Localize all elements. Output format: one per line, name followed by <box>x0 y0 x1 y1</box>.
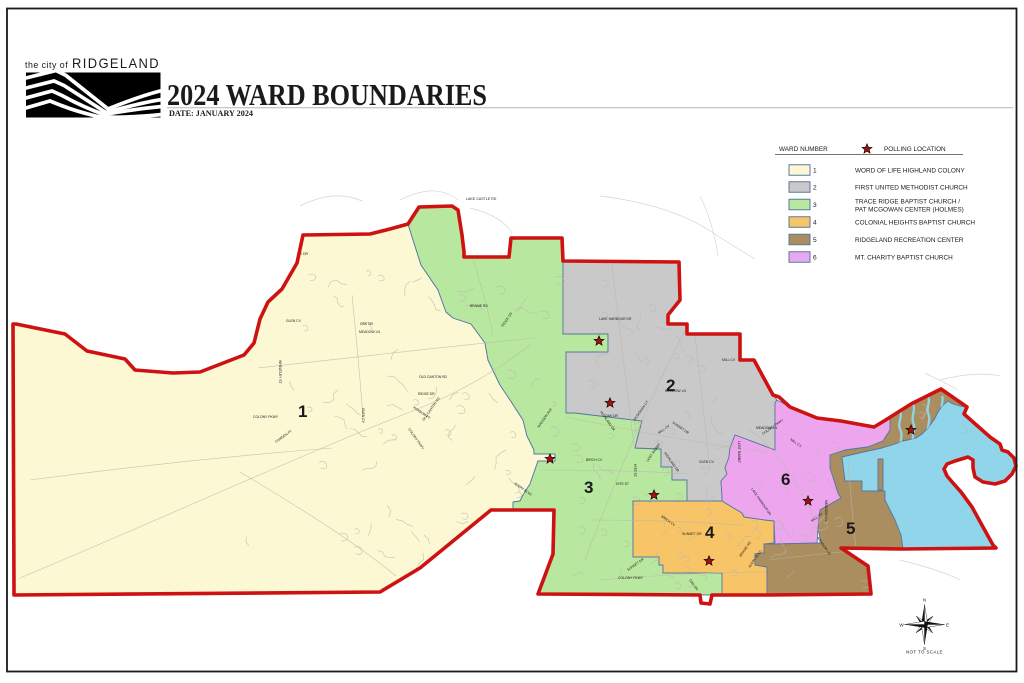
svg-text:WHEATLEY ST: WHEATLEY ST <box>278 360 282 384</box>
svg-text:GLEN CV: GLEN CV <box>286 319 302 323</box>
svg-text:5: 5 <box>846 519 855 538</box>
svg-text:DATE: JANUARY 2024: DATE: JANUARY 2024 <box>169 108 254 118</box>
svg-text:6: 6 <box>813 254 817 261</box>
svg-text:2: 2 <box>666 376 675 395</box>
svg-text:RIDGELAND: RIDGELAND <box>72 55 160 71</box>
svg-text:MT. CHARITY BAPTIST CHURCH: MT. CHARITY BAPTIST CHURCH <box>855 254 953 261</box>
svg-text:COLONY PKWY: COLONY PKWY <box>253 415 279 419</box>
svg-text:4: 4 <box>705 523 715 542</box>
svg-text:LOST RABBIT: LOST RABBIT <box>737 441 741 463</box>
svg-text:COLONY PKWY: COLONY PKWY <box>618 576 644 580</box>
svg-text:5: 5 <box>813 237 817 244</box>
svg-text:2024 WARD BOUNDARIES: 2024 WARD BOUNDARIES <box>167 77 487 112</box>
svg-text:1: 1 <box>298 402 307 421</box>
svg-text:GLEN CV: GLEN CV <box>699 460 715 464</box>
svg-text:W: W <box>899 623 904 628</box>
svg-text:WARD NUMBER: WARD NUMBER <box>779 146 828 153</box>
svg-text:6: 6 <box>781 470 790 489</box>
svg-text:the city of: the city of <box>25 60 68 70</box>
svg-text:OAK DR: OAK DR <box>360 322 374 326</box>
svg-text:1: 1 <box>813 167 817 174</box>
svg-text:PAT MCGOWAN CENTER (HOLMES): PAT MCGOWAN CENTER (HOLMES) <box>855 206 964 213</box>
svg-text:GLEN CV: GLEN CV <box>361 408 365 424</box>
svg-text:SUNSET DR: SUNSET DR <box>682 532 702 536</box>
svg-text:FIRST UNITED METHODIST CHURCH: FIRST UNITED METHODIST CHURCH <box>855 184 968 191</box>
svg-text:MEADOW LN: MEADOW LN <box>359 330 380 334</box>
svg-text:3: 3 <box>813 202 817 209</box>
svg-text:OLD CANTON RD: OLD CANTON RD <box>419 375 448 379</box>
svg-text:WORD OF LIFE HIGHLAND COLONY: WORD OF LIFE HIGHLAND COLONY <box>855 167 965 174</box>
svg-text:HITE ST: HITE ST <box>633 464 637 477</box>
svg-text:2: 2 <box>813 184 817 191</box>
svg-text:POLLING LOCATION: POLLING LOCATION <box>884 146 946 153</box>
svg-text:MEADOW LN: MEADOW LN <box>824 500 828 521</box>
svg-text:RIDGELAND RECREATION CENTER: RIDGELAND RECREATION CENTER <box>855 237 964 244</box>
svg-text:N: N <box>923 598 926 603</box>
svg-text:TRACE RIDGE BAPTIST CHURCH /: TRACE RIDGE BAPTIST CHURCH / <box>855 198 960 205</box>
svg-text:HITE ST: HITE ST <box>616 482 629 486</box>
svg-text:LAKE CASTLE RD: LAKE CASTLE RD <box>466 197 497 201</box>
svg-text:COLONIAL HEIGHTS BAPTIST CHURC: COLONIAL HEIGHTS BAPTIST CHURCH <box>855 219 975 226</box>
svg-text:E: E <box>946 623 949 628</box>
svg-text:BRAME RD: BRAME RD <box>470 304 488 308</box>
svg-text:4: 4 <box>813 219 817 226</box>
svg-text:BIRCH CV: BIRCH CV <box>586 458 603 462</box>
svg-text:NOT TO SCALE: NOT TO SCALE <box>906 650 943 655</box>
svg-text:RIDGE DR: RIDGE DR <box>418 392 435 396</box>
svg-text:3: 3 <box>584 478 593 497</box>
svg-text:OAK DR: OAK DR <box>605 414 619 418</box>
svg-text:LAKE HARBOUR DR: LAKE HARBOUR DR <box>599 317 632 321</box>
svg-text:MILL CV: MILL CV <box>722 358 736 362</box>
